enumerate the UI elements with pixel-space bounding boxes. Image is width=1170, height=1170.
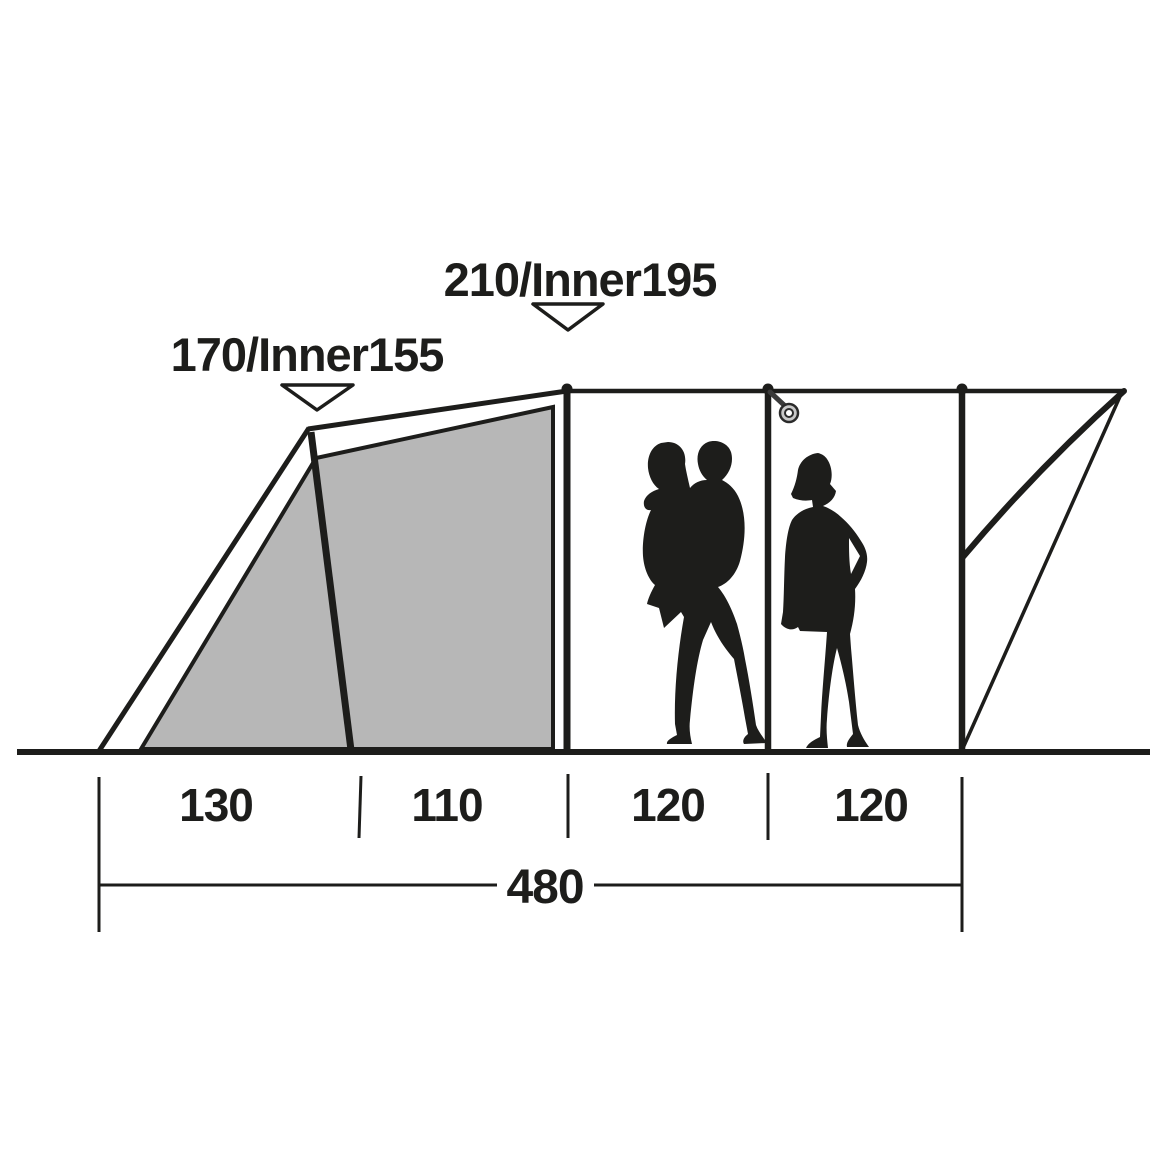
front-height-label: 170/Inner155 — [171, 328, 444, 381]
main-pole-cap — [562, 384, 573, 395]
tent-dimension-diagram: 170/Inner155 210/Inner195 130 110 120 12… — [0, 0, 1170, 1170]
lantern-hook-stick — [770, 392, 784, 405]
lantern-ring-hole — [785, 409, 793, 417]
adult-child-silhouette — [643, 441, 767, 744]
section-width-120a: 120 — [631, 779, 705, 831]
total-width-label: 480 — [506, 861, 583, 914]
peak-height-label: 210/Inner195 — [444, 253, 717, 306]
woman-silhouette — [781, 453, 869, 748]
section-width-130: 130 — [179, 779, 253, 831]
rear-guy-line — [963, 392, 1122, 748]
diagram-canvas: 170/Inner155 210/Inner195 130 110 120 12… — [0, 0, 1170, 1170]
down-triangle-marker-peak — [533, 304, 603, 330]
section-width-110: 110 — [411, 779, 482, 831]
tick-130-110 — [359, 776, 361, 838]
rear-pole-cap — [957, 384, 968, 395]
section-width-120b: 120 — [834, 779, 908, 831]
rear-diagonal-pole — [963, 391, 1124, 557]
down-triangle-marker-front — [282, 385, 353, 410]
